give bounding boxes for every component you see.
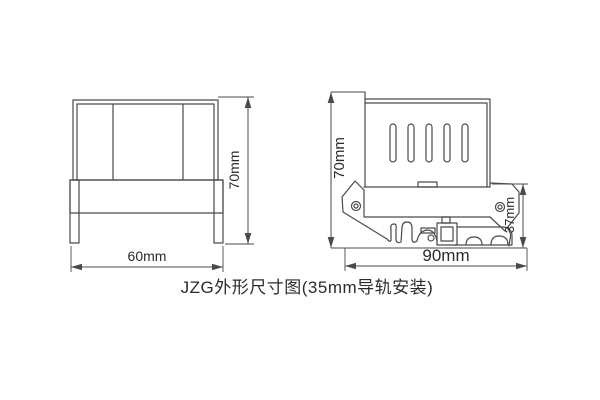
din-rail-feet (466, 236, 508, 245)
side-view (342, 92, 519, 246)
front-left-leg (70, 180, 79, 243)
clip-hole (428, 235, 434, 241)
dimension-drawing-page: 60mm 70mm (0, 0, 600, 400)
side-rail-height-dimension-label: 37mm (502, 197, 517, 233)
side-height-dimension-label: 70mm (331, 137, 348, 179)
clip-block-inner (441, 227, 453, 241)
vent-slot (462, 124, 468, 162)
drawing-caption: JZG外形尺寸图(35mm导轨安装) (181, 278, 434, 297)
side-cover-outline (365, 99, 490, 187)
front-cover-outline (73, 100, 218, 180)
front-cover-divider-lines (113, 104, 183, 180)
front-view (70, 100, 223, 243)
front-view-dimensions: 60mm 70mm (71, 97, 254, 272)
side-latch-tab (418, 182, 437, 187)
front-right-leg (214, 180, 223, 243)
left-screw-hole-center (354, 204, 358, 208)
side-base-block (364, 187, 490, 217)
side-vent-slots (390, 124, 468, 162)
vent-slot (390, 124, 396, 162)
clip-block-tab (442, 217, 450, 223)
front-width-dimension-label: 60mm (128, 248, 167, 264)
front-cover-inner-edge (77, 104, 214, 180)
left-screw-hole (352, 202, 361, 211)
technical-drawing-canvas: 60mm 70mm (0, 0, 600, 400)
front-height-dimension-label: 70mm (226, 151, 242, 190)
vent-slot (408, 124, 414, 162)
clip-block (437, 223, 457, 245)
vent-slot (426, 124, 432, 162)
front-base-outline (70, 180, 223, 213)
vent-slot (444, 124, 450, 162)
side-width-dimension-label: 90mm (422, 246, 469, 265)
